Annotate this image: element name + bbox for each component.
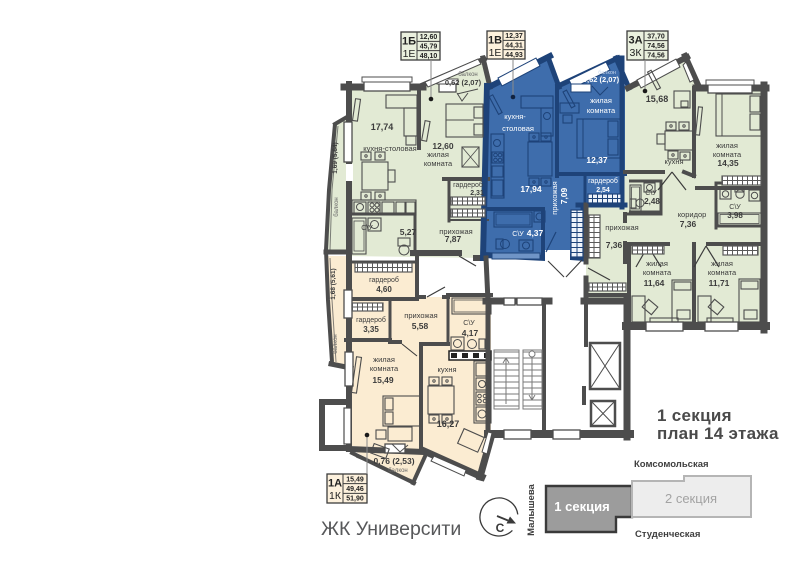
svg-text:комната: комната	[424, 159, 453, 168]
svg-text:1К: 1К	[329, 490, 342, 502]
svg-text:3А: 3А	[628, 35, 642, 47]
svg-text:кухня: кухня	[664, 157, 683, 166]
svg-text:жилая: жилая	[590, 96, 612, 105]
svg-text:49,46: 49,46	[346, 486, 364, 493]
svg-text:44,31: 44,31	[505, 43, 523, 50]
svg-text:45,79: 45,79	[420, 44, 438, 51]
svg-text:прихожая: прихожая	[605, 223, 638, 232]
svg-text:гардероб: гардероб	[356, 316, 386, 324]
svg-text:С\У: С\У	[361, 225, 373, 232]
svg-text:1Б: 1Б	[402, 36, 416, 48]
svg-text:прихожая: прихожая	[550, 181, 559, 214]
svg-text:11,64: 11,64	[644, 278, 665, 288]
svg-text:Студенческая: Студенческая	[635, 529, 700, 540]
svg-text:жилая: жилая	[646, 259, 668, 268]
svg-text:комната: комната	[370, 364, 399, 373]
svg-text:гардероб: гардероб	[369, 276, 399, 284]
svg-text:74,56: 74,56	[647, 43, 665, 50]
svg-text:жилая: жилая	[373, 355, 395, 364]
svg-text:4,37: 4,37	[527, 228, 544, 238]
svg-text:3,35: 3,35	[363, 325, 379, 334]
svg-text:15,68: 15,68	[646, 94, 669, 104]
svg-text:0,62 (2,07): 0,62 (2,07)	[583, 75, 620, 84]
svg-text:5,58: 5,58	[412, 321, 429, 331]
svg-text:11,71: 11,71	[709, 278, 730, 288]
svg-text:0,62 (2,07): 0,62 (2,07)	[445, 78, 482, 87]
svg-text:51,90: 51,90	[346, 496, 364, 503]
svg-text:1В: 1В	[488, 35, 502, 47]
svg-text:балкон: балкон	[334, 197, 340, 216]
svg-text:комната: комната	[587, 106, 616, 115]
svg-text:2,54: 2,54	[596, 187, 610, 194]
svg-text:план 14 этажа: план 14 этажа	[657, 424, 779, 443]
svg-text:3К: 3К	[630, 47, 643, 59]
svg-text:1,68 (5,61): 1,68 (5,61)	[330, 268, 337, 299]
svg-text:С\У: С\У	[729, 204, 741, 211]
svg-text:15,49: 15,49	[372, 375, 394, 385]
svg-text:комната: комната	[643, 268, 672, 277]
svg-text:Комсомольская: Комсомольская	[634, 459, 709, 470]
svg-text:14,35: 14,35	[717, 158, 739, 168]
svg-text:1 секция: 1 секция	[554, 499, 609, 514]
svg-text:4,17: 4,17	[462, 328, 479, 338]
svg-text:Малышева: Малышева	[526, 483, 537, 535]
svg-text:жилая: жилая	[711, 259, 733, 268]
svg-text:жилая: жилая	[716, 141, 738, 150]
svg-text:1 секция: 1 секция	[657, 406, 732, 425]
svg-text:гардероб: гардероб	[588, 177, 618, 185]
svg-text:1А: 1А	[328, 478, 342, 490]
svg-text:5,27: 5,27	[400, 227, 417, 237]
svg-text:2 секция: 2 секция	[665, 491, 717, 506]
svg-text:жилая: жилая	[427, 150, 449, 159]
svg-text:гардероб: гардероб	[453, 181, 483, 189]
svg-text:1Е: 1Е	[403, 48, 416, 60]
svg-text:1Е: 1Е	[489, 47, 502, 59]
svg-text:ЖК Университи: ЖК Университи	[321, 518, 461, 540]
svg-text:12,60: 12,60	[420, 34, 438, 41]
svg-text:7,87: 7,87	[445, 234, 462, 244]
svg-text:74,56: 74,56	[647, 53, 665, 60]
svg-text:кухня: кухня	[437, 365, 456, 374]
svg-text:7,36: 7,36	[606, 240, 623, 250]
svg-text:С\У: С\У	[645, 190, 657, 197]
svg-text:17,94: 17,94	[520, 184, 542, 194]
svg-text:коридор: коридор	[678, 210, 707, 219]
svg-text:2,31: 2,31	[470, 190, 484, 197]
svg-text:0,76 (2,53): 0,76 (2,53)	[373, 456, 414, 466]
svg-text:кухня-: кухня-	[504, 112, 526, 121]
svg-text:12,37: 12,37	[505, 33, 523, 40]
svg-text:37,70: 37,70	[647, 33, 665, 40]
svg-text:балкон: балкон	[388, 468, 407, 474]
svg-text:44,93: 44,93	[505, 52, 523, 59]
svg-text:4,60: 4,60	[376, 285, 392, 294]
svg-text:С\У: С\У	[512, 231, 524, 238]
svg-text:кухня-столовая: кухня-столовая	[363, 144, 416, 153]
svg-text:48,10: 48,10	[420, 53, 438, 60]
svg-text:3,98: 3,98	[727, 211, 743, 220]
svg-text:С: С	[496, 521, 505, 535]
svg-text:7,36: 7,36	[680, 219, 697, 229]
svg-text:15,49: 15,49	[346, 476, 364, 483]
svg-text:12,37: 12,37	[586, 155, 608, 165]
svg-text:17,74: 17,74	[371, 122, 394, 132]
svg-text:прихожая: прихожая	[404, 311, 437, 320]
svg-text:комната: комната	[708, 268, 737, 277]
svg-text:1,69 (5,64): 1,69 (5,64)	[332, 142, 339, 173]
svg-text:2,48: 2,48	[644, 197, 660, 206]
svg-text:С\У: С\У	[463, 320, 475, 327]
svg-text:7,09: 7,09	[559, 187, 569, 204]
svg-text:балкон: балкон	[333, 334, 339, 353]
svg-text:столовая: столовая	[502, 124, 534, 133]
svg-text:16,27: 16,27	[437, 419, 460, 429]
